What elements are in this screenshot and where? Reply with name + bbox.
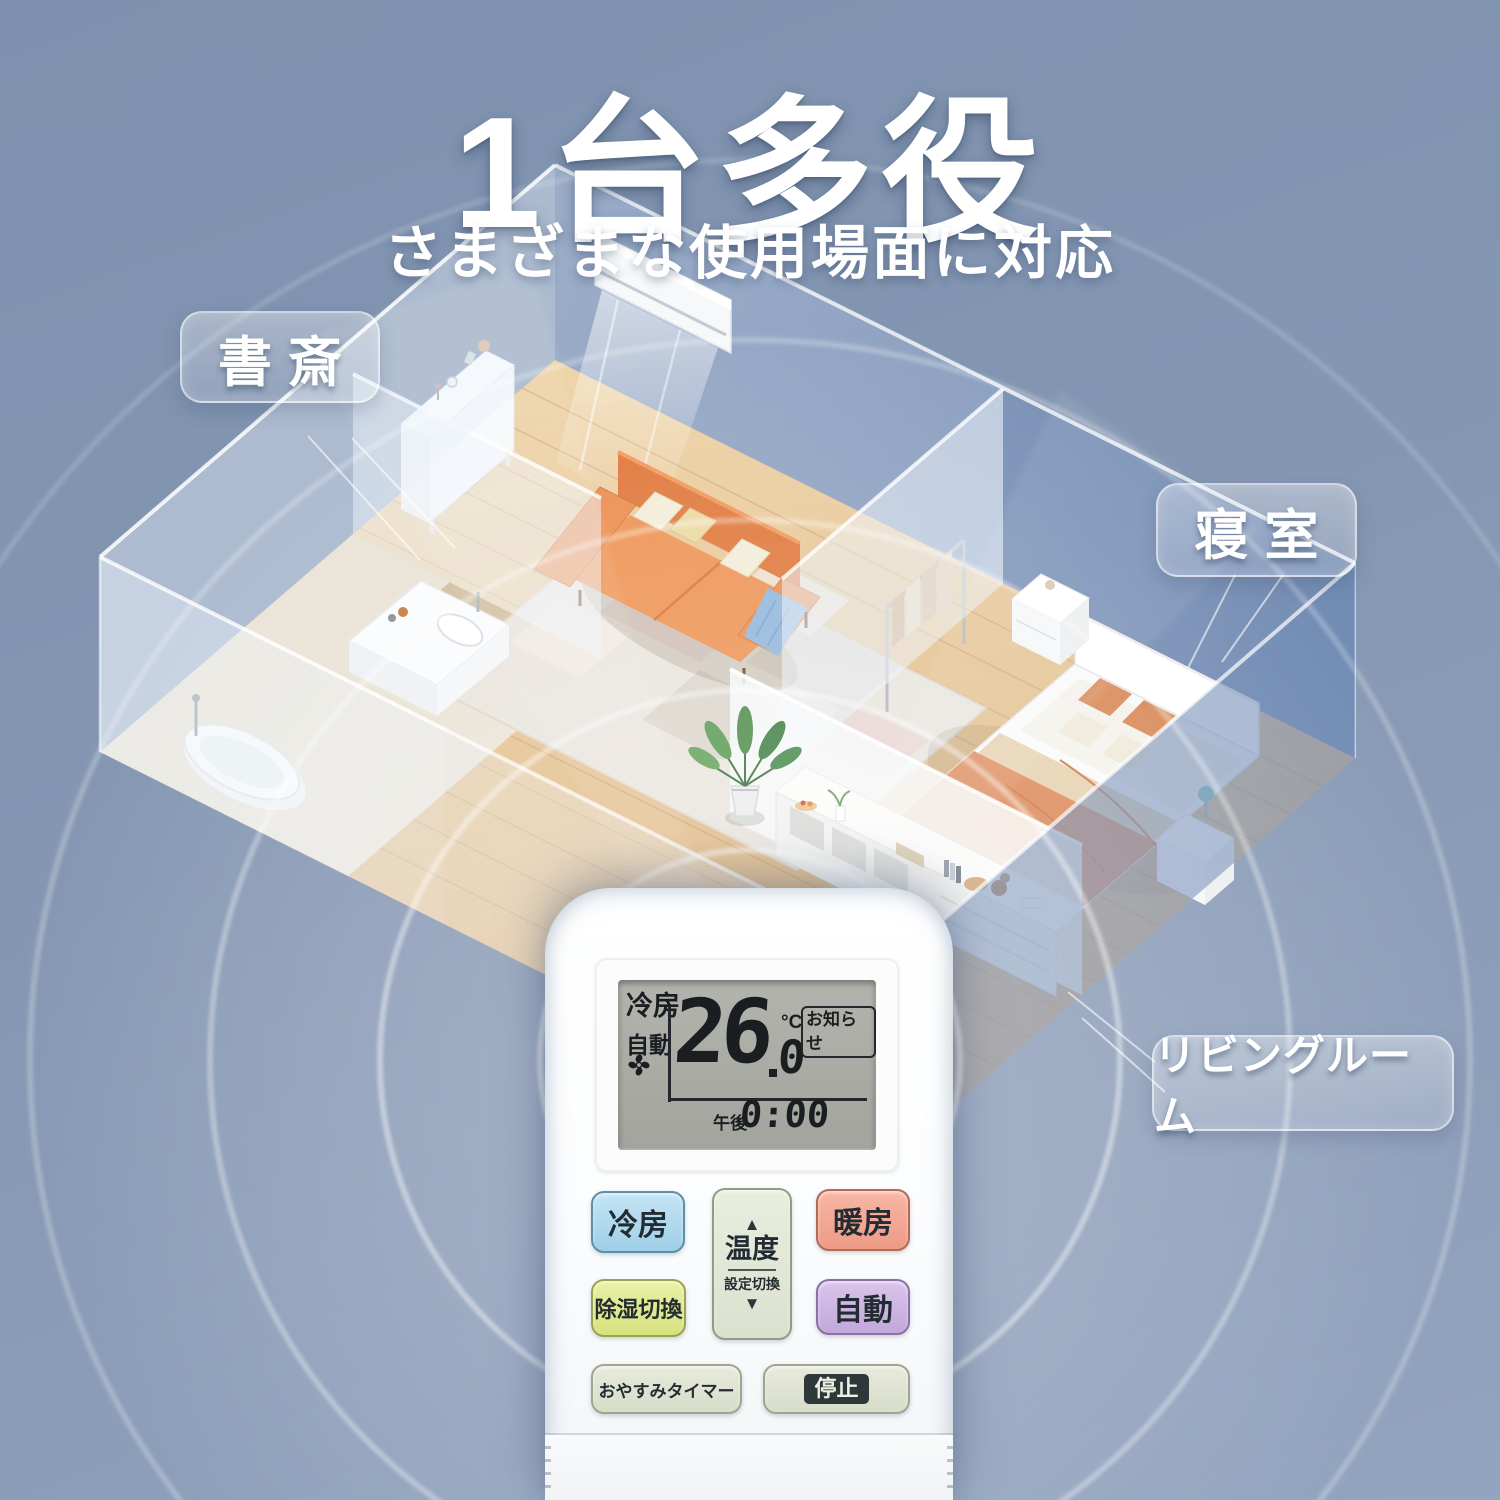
dehumidify-button[interactable]: 除湿切換 bbox=[591, 1279, 686, 1337]
stop-button[interactable]: 停止 bbox=[763, 1364, 910, 1414]
lcd-screen: 冷房 自動 26 0 bbox=[618, 980, 876, 1150]
page: 1台多役 さまざまな使用場面に対応 書斎 寝室 リビングルーム 冷房 自動 bbox=[0, 0, 1500, 1500]
temperature-button[interactable]: ▲ 温度 設定切換 ▼ bbox=[712, 1188, 792, 1340]
auto-button[interactable]: 自動 bbox=[816, 1279, 910, 1335]
lcd-mode-label: 冷房 bbox=[626, 984, 680, 1023]
arrow-up-icon[interactable]: ▲ bbox=[744, 1216, 761, 1233]
label-bedroom: 寝室 bbox=[1156, 483, 1357, 577]
remote-lower-body bbox=[545, 1435, 953, 1500]
arrow-down-icon[interactable]: ▼ bbox=[744, 1295, 761, 1312]
lcd-temperature-value: 26 bbox=[671, 988, 771, 1076]
heat-button[interactable]: 暖房 bbox=[816, 1189, 910, 1251]
temperature-button-divider bbox=[728, 1269, 776, 1271]
lcd-divider-vertical bbox=[668, 1006, 671, 1102]
setting-switch-label: 設定切換 bbox=[724, 1274, 780, 1294]
temperature-button-label: 温度 bbox=[725, 1234, 779, 1265]
lcd-temperature-unit: °C bbox=[781, 1012, 802, 1034]
label-study: 書斎 bbox=[180, 311, 380, 403]
lcd-notice-badge: お知らせ bbox=[801, 1006, 876, 1058]
remote-grip-notches-left bbox=[545, 1446, 551, 1494]
cool-button[interactable]: 冷房 bbox=[591, 1191, 685, 1253]
sleep-timer-button[interactable]: おやすみタイマー bbox=[591, 1364, 742, 1414]
label-living-room: リビングルーム bbox=[1152, 1035, 1454, 1131]
lcd-frame: 冷房 自動 26 0 bbox=[595, 958, 899, 1172]
fan-icon bbox=[628, 1054, 650, 1076]
remote-grip-notches-right bbox=[947, 1446, 953, 1494]
page-subtitle: さまざまな使用場面に対応 bbox=[0, 206, 1500, 290]
lcd-time-value: 0:00 bbox=[739, 1096, 831, 1133]
stop-button-label: 停止 bbox=[804, 1374, 868, 1404]
remote-control: 冷房 自動 26 0 bbox=[545, 888, 953, 1500]
